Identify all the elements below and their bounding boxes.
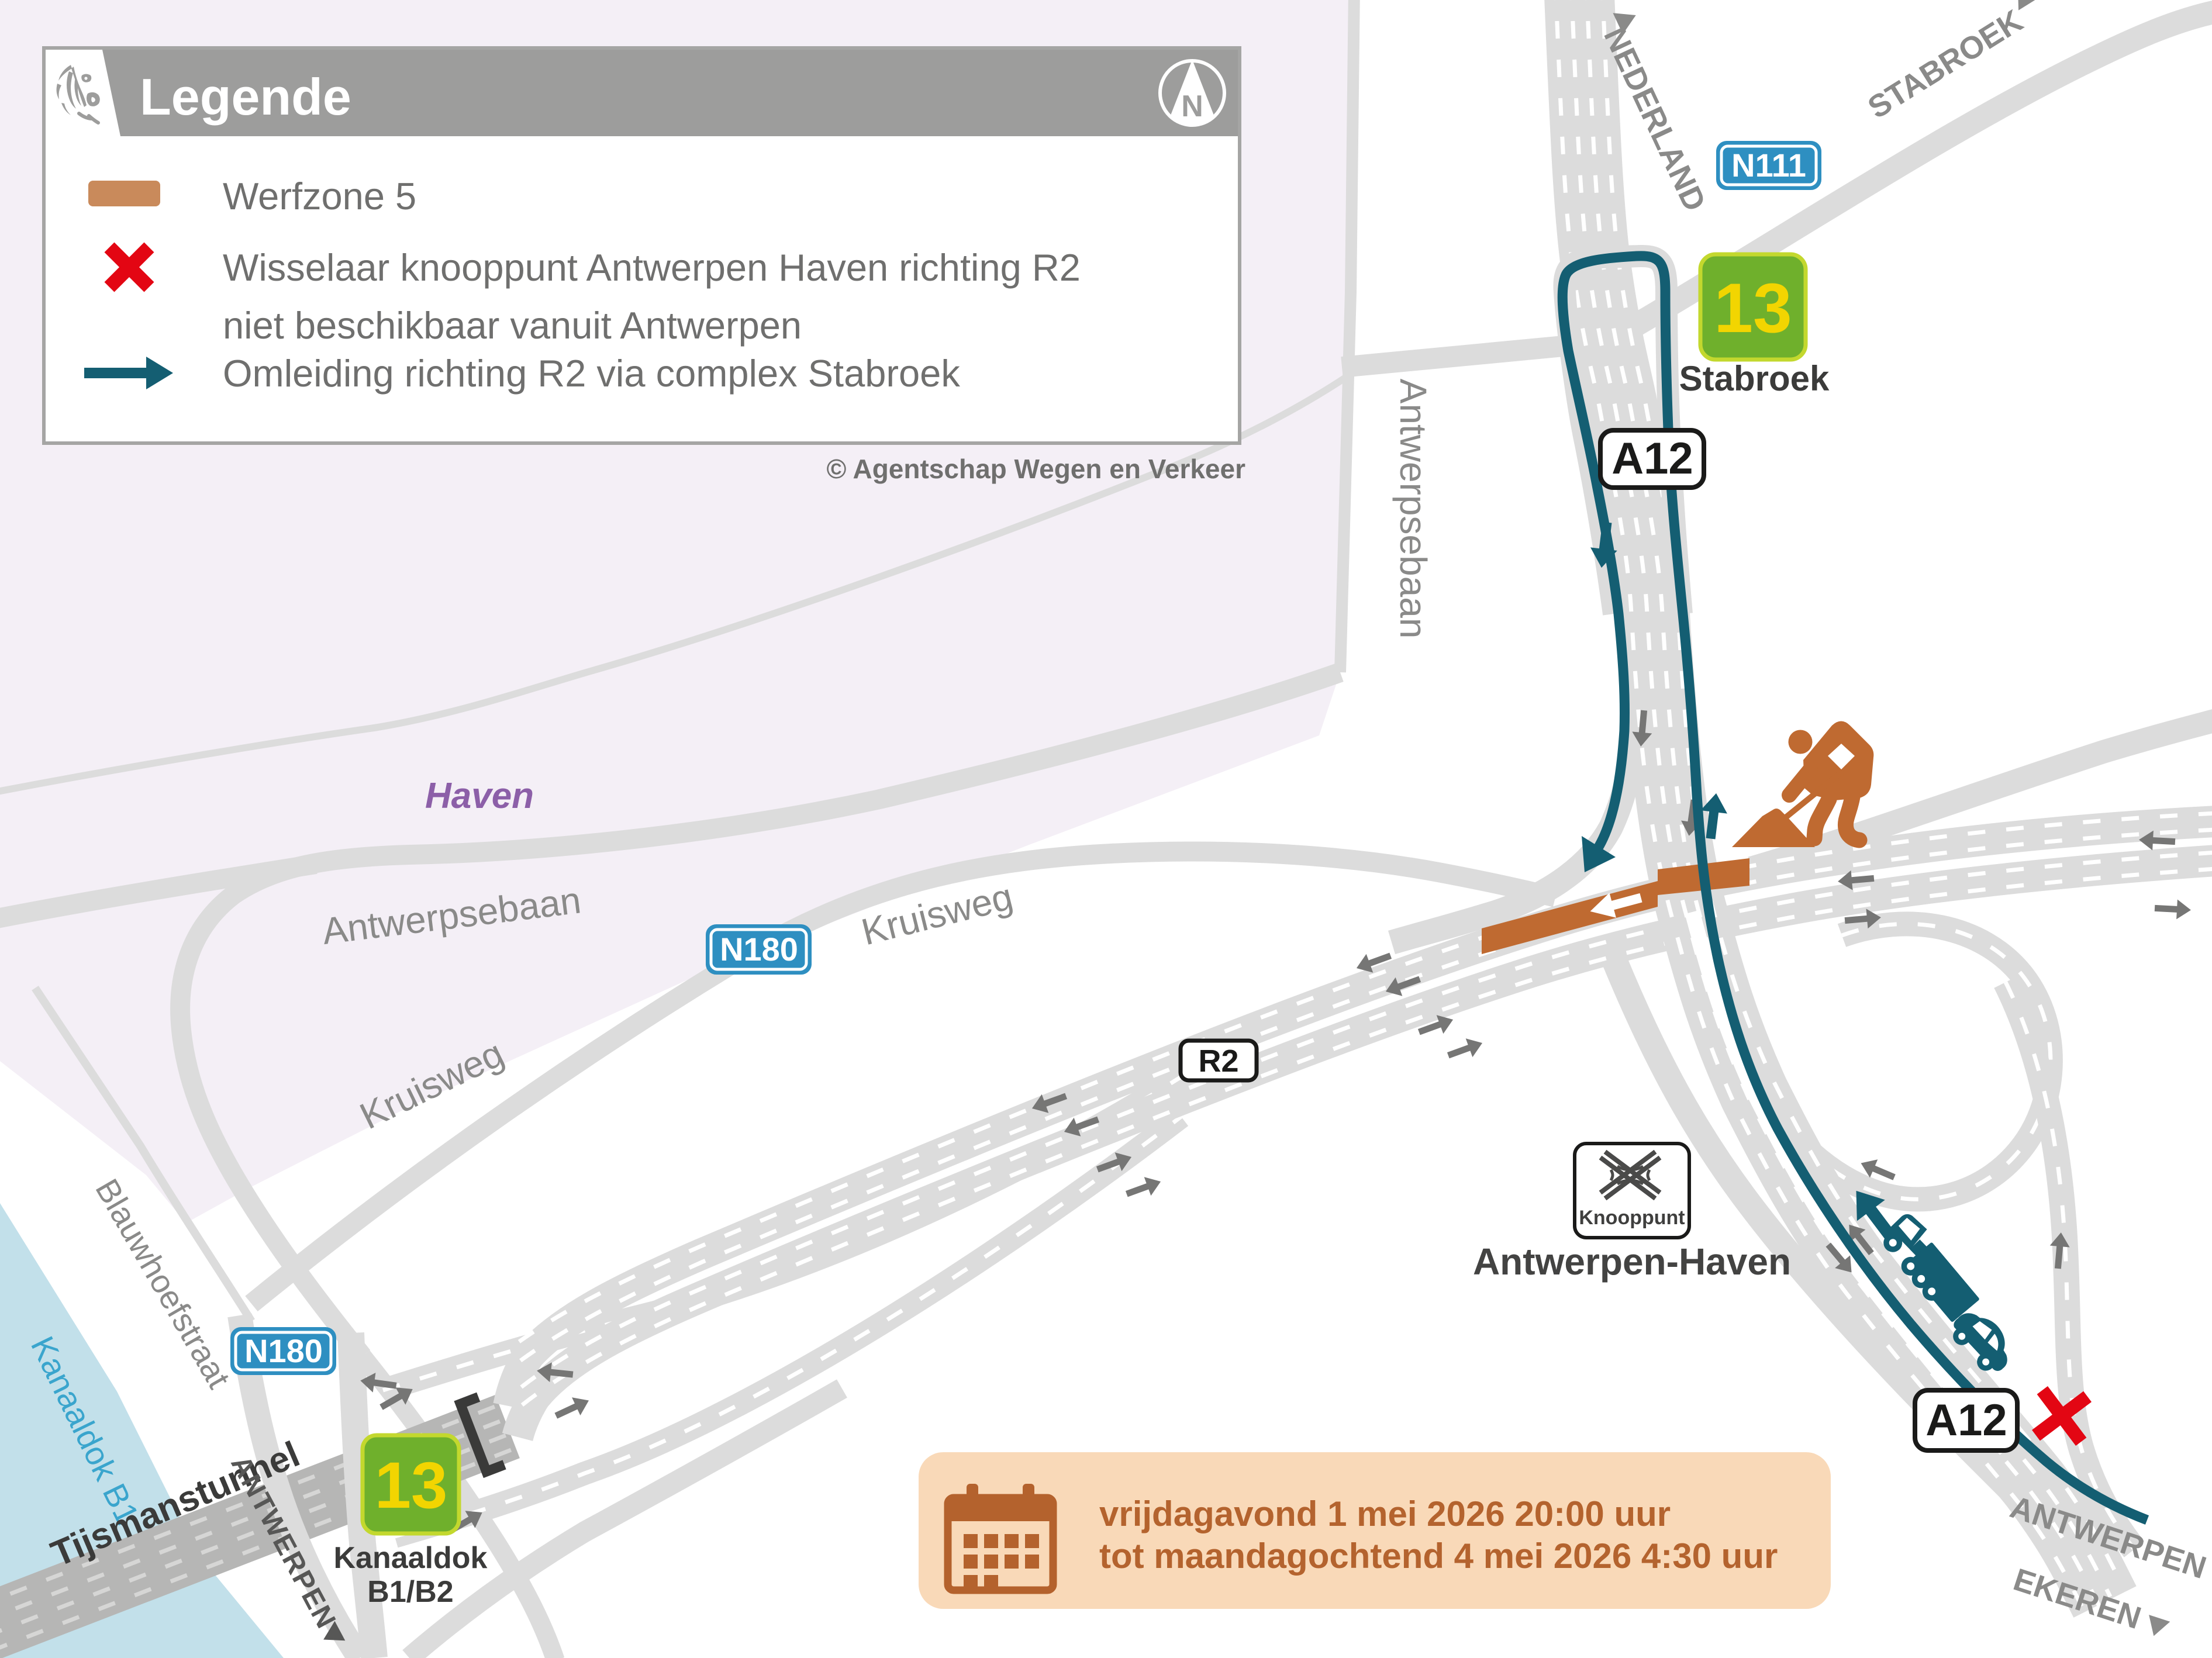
svg-text:N: N: [1181, 89, 1203, 123]
svg-text:tot maandagochtend 4 mei 2026: tot maandagochtend 4 mei 2026 4:30 uur: [1099, 1536, 1778, 1576]
svg-text:Omleiding richting R2 via comp: Omleiding richting R2 via complex Stabro…: [223, 352, 960, 395]
svg-text:13: 13: [375, 1449, 448, 1522]
svg-text:Antwerpen-Haven: Antwerpen-Haven: [1473, 1241, 1791, 1283]
svg-text:vrijdagavond 1 mei 2026 20:00: vrijdagavond 1 mei 2026 20:00 uur: [1099, 1494, 1671, 1533]
svg-text:Legende: Legende: [140, 68, 351, 126]
svg-text:13: 13: [1714, 269, 1792, 347]
svg-text:N111: N111: [1731, 147, 1806, 184]
svg-text:© Agentschap Wegen en Verkeer: © Agentschap Wegen en Verkeer: [827, 454, 1246, 484]
svg-text:Antwerpsebaan: Antwerpsebaan: [1392, 379, 1434, 639]
svg-text:Kanaaldok: Kanaaldok: [334, 1541, 488, 1575]
svg-text:N180: N180: [244, 1332, 323, 1369]
svg-text:Werfzone 5: Werfzone 5: [223, 175, 416, 217]
svg-text:niet beschikbaar vanuit Antwer: niet beschikbaar vanuit Antwerpen: [223, 304, 802, 347]
svg-text:B1/B2: B1/B2: [367, 1575, 453, 1609]
svg-text:N180: N180: [720, 931, 798, 968]
svg-text:Haven: Haven: [425, 776, 534, 816]
svg-text:Knooppunt: Knooppunt: [1579, 1207, 1685, 1229]
svg-text:Stabroek: Stabroek: [1679, 359, 1830, 398]
svg-text:A12: A12: [1611, 434, 1693, 483]
svg-text:R2: R2: [1198, 1044, 1238, 1079]
svg-text:A12: A12: [1925, 1396, 2007, 1445]
svg-text:Wisselaar knooppunt Antwerpen: Wisselaar knooppunt Antwerpen Haven rich…: [223, 246, 1081, 289]
